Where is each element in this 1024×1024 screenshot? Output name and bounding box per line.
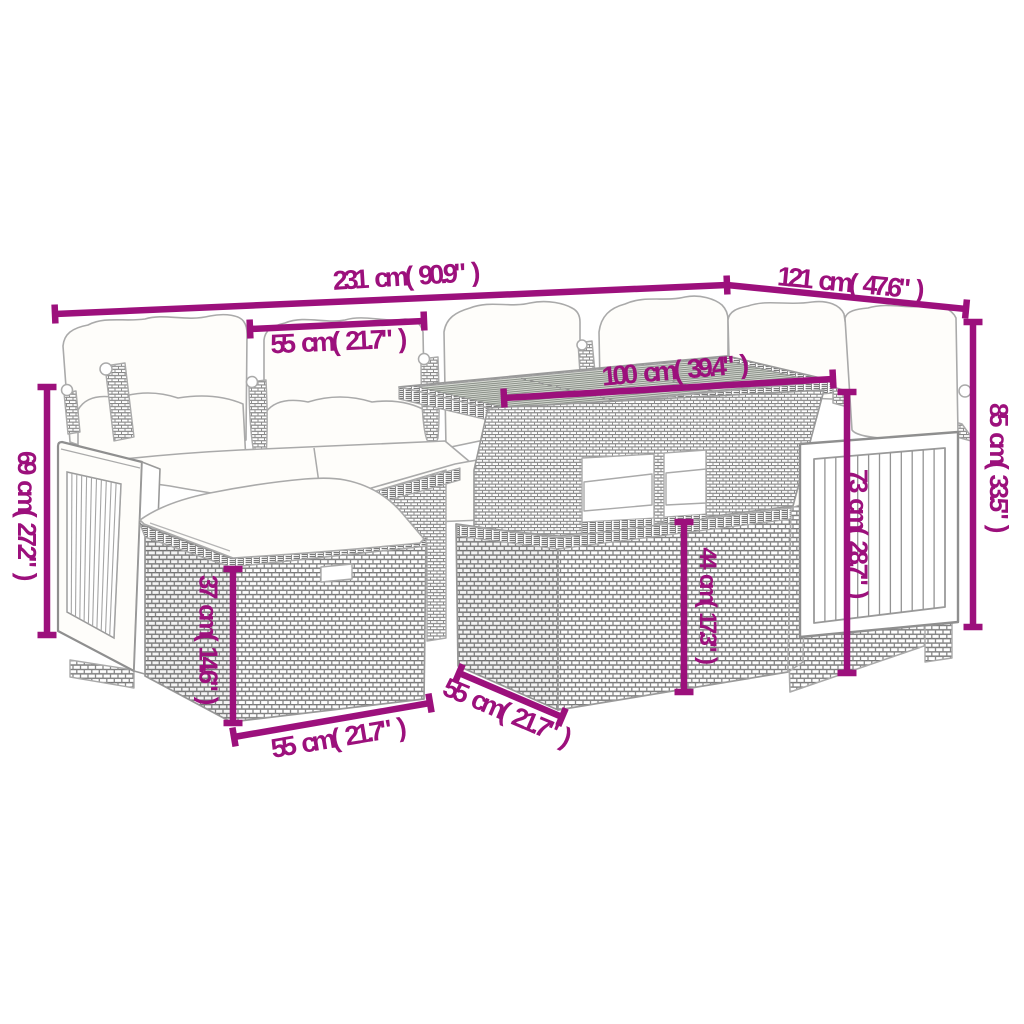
svg-text:55 cm( 21.7" ): 55 cm( 21.7" )	[270, 323, 407, 359]
svg-text:37 cm( 14.6" ): 37 cm( 14.6" )	[194, 575, 224, 705]
svg-text:73 cm( 28.7" ): 73 cm( 28.7" )	[844, 469, 874, 599]
svg-text:44 cm( 17.3" ): 44 cm( 17.3" )	[694, 547, 721, 664]
svg-text:85 cm( 33.5" ): 85 cm( 33.5" )	[984, 403, 1014, 533]
svg-text:69 cm( 27.2" ): 69 cm( 27.2" )	[12, 451, 42, 581]
